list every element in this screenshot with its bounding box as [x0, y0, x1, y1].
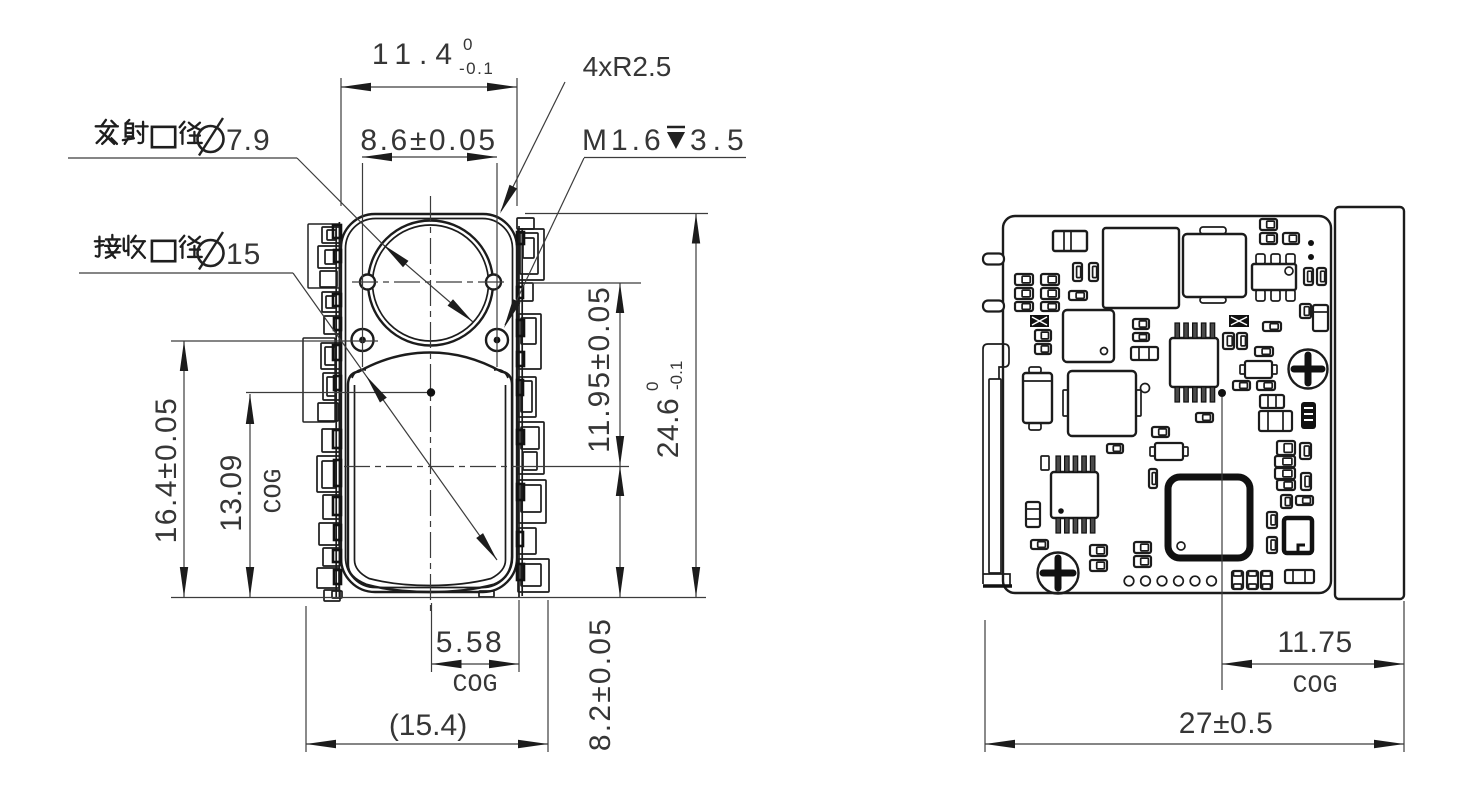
- svg-text:11.75: 11.75: [1277, 626, 1352, 659]
- svg-text:11.95±0.05: 11.95±0.05: [583, 285, 616, 453]
- svg-text:13.09: 13.09: [215, 454, 248, 532]
- svg-text:11.4: 11.4: [372, 38, 460, 71]
- svg-text:COG: COG: [452, 670, 497, 699]
- svg-text:27±0.5: 27±0.5: [1179, 707, 1274, 740]
- svg-text:24.6: 24.6: [652, 398, 685, 458]
- svg-text:5.58: 5.58: [436, 626, 504, 659]
- svg-text:16.4±0.05: 16.4±0.05: [150, 397, 183, 544]
- svg-text:8.6±0.05: 8.6±0.05: [360, 124, 497, 157]
- svg-text:-0.1: -0.1: [459, 59, 494, 78]
- svg-text:COG: COG: [1292, 671, 1337, 700]
- svg-text:0: 0: [463, 35, 474, 54]
- svg-text:0: 0: [643, 382, 662, 391]
- svg-text:15: 15: [226, 238, 261, 271]
- svg-text:7.9: 7.9: [226, 124, 271, 157]
- svg-text:3.5: 3.5: [690, 124, 750, 157]
- svg-text:8.2±0.05: 8.2±0.05: [584, 617, 617, 751]
- svg-text:-0.1: -0.1: [667, 361, 686, 390]
- svg-text:COG: COG: [260, 468, 289, 513]
- svg-text:M1.6: M1.6: [582, 124, 665, 157]
- svg-text:4xR2.5: 4xR2.5: [583, 51, 672, 82]
- svg-text:(15.4): (15.4): [389, 709, 467, 742]
